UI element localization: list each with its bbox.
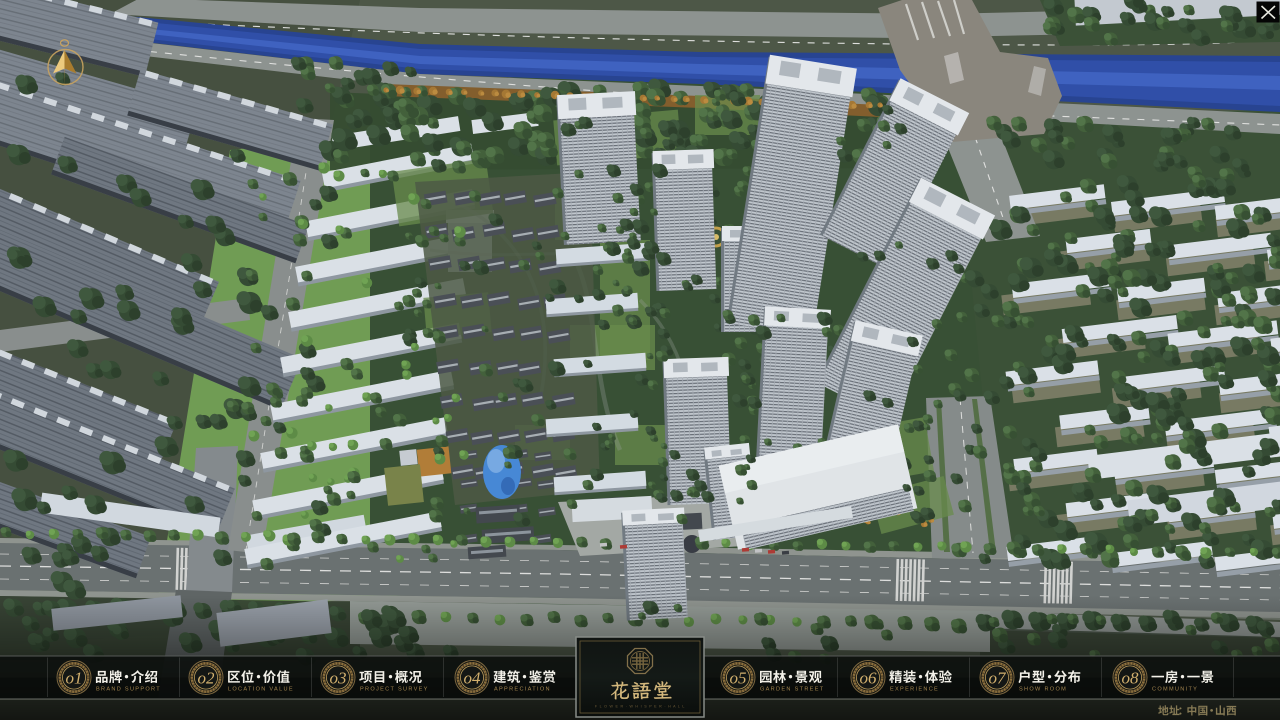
- svg-text:o6: o6: [860, 669, 878, 688]
- svg-text:BRAND SUPPORT: BRAND SUPPORT: [96, 687, 161, 693]
- svg-text:o8: o8: [1122, 669, 1140, 688]
- svg-text:o7: o7: [989, 669, 1008, 688]
- svg-text:F L O W E R · W H I S P E R ·: F L O W E R · W H I S P E R · H A L L: [595, 705, 685, 709]
- svg-text:o4: o4: [464, 669, 482, 688]
- svg-text:APPRECIATION: APPRECIATION: [494, 687, 551, 693]
- svg-text:PROJECT SURVEY: PROJECT SURVEY: [360, 687, 429, 693]
- svg-text:o3: o3: [330, 669, 347, 688]
- svg-text:o2: o2: [198, 669, 216, 688]
- svg-text:o1: o1: [66, 669, 83, 688]
- svg-text:EXPERIENCE: EXPERIENCE: [890, 687, 939, 693]
- svg-text:SHOW ROOM: SHOW ROOM: [1019, 687, 1067, 693]
- svg-text:o5: o5: [730, 669, 747, 688]
- svg-text:COMMUNITY: COMMUNITY: [1152, 687, 1198, 693]
- svg-text:LOCATION VALUE: LOCATION VALUE: [228, 687, 294, 693]
- svg-text:GARDEN STREET: GARDEN STREET: [760, 687, 824, 693]
